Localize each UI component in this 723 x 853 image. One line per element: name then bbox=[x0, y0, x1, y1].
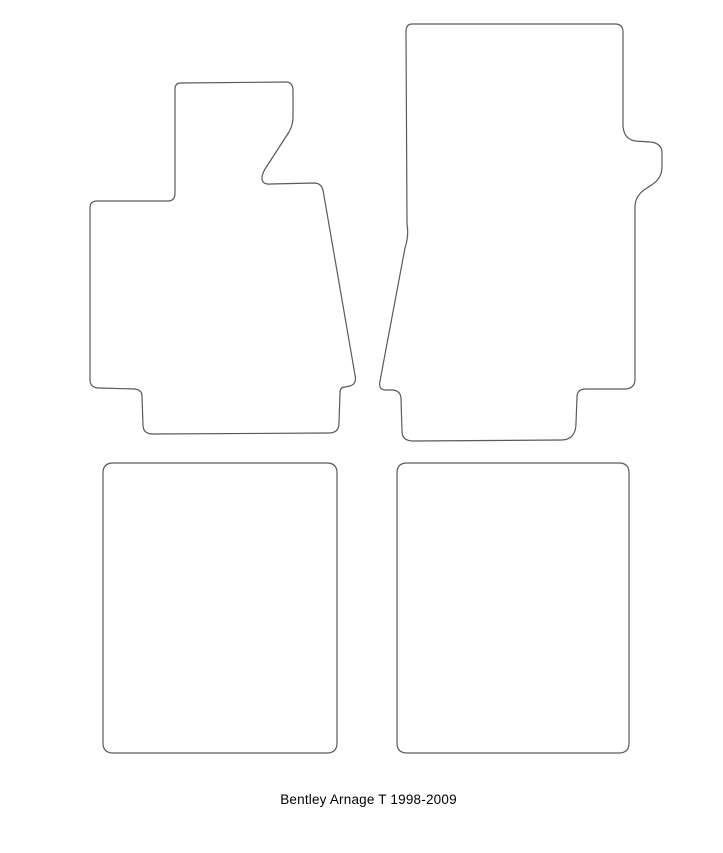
rear-right-mat-outline bbox=[397, 463, 629, 753]
rear-left-mat-outline bbox=[103, 463, 337, 753]
car-mat-set-diagram bbox=[0, 0, 723, 853]
product-caption: Bentley Arnage T 1998-2009 bbox=[0, 792, 723, 808]
driver-front-mat-outline bbox=[90, 82, 355, 434]
passenger-front-mat-outline bbox=[380, 24, 662, 441]
mat-set-diagram-page: Bentley Arnage T 1998-2009 bbox=[0, 0, 723, 853]
